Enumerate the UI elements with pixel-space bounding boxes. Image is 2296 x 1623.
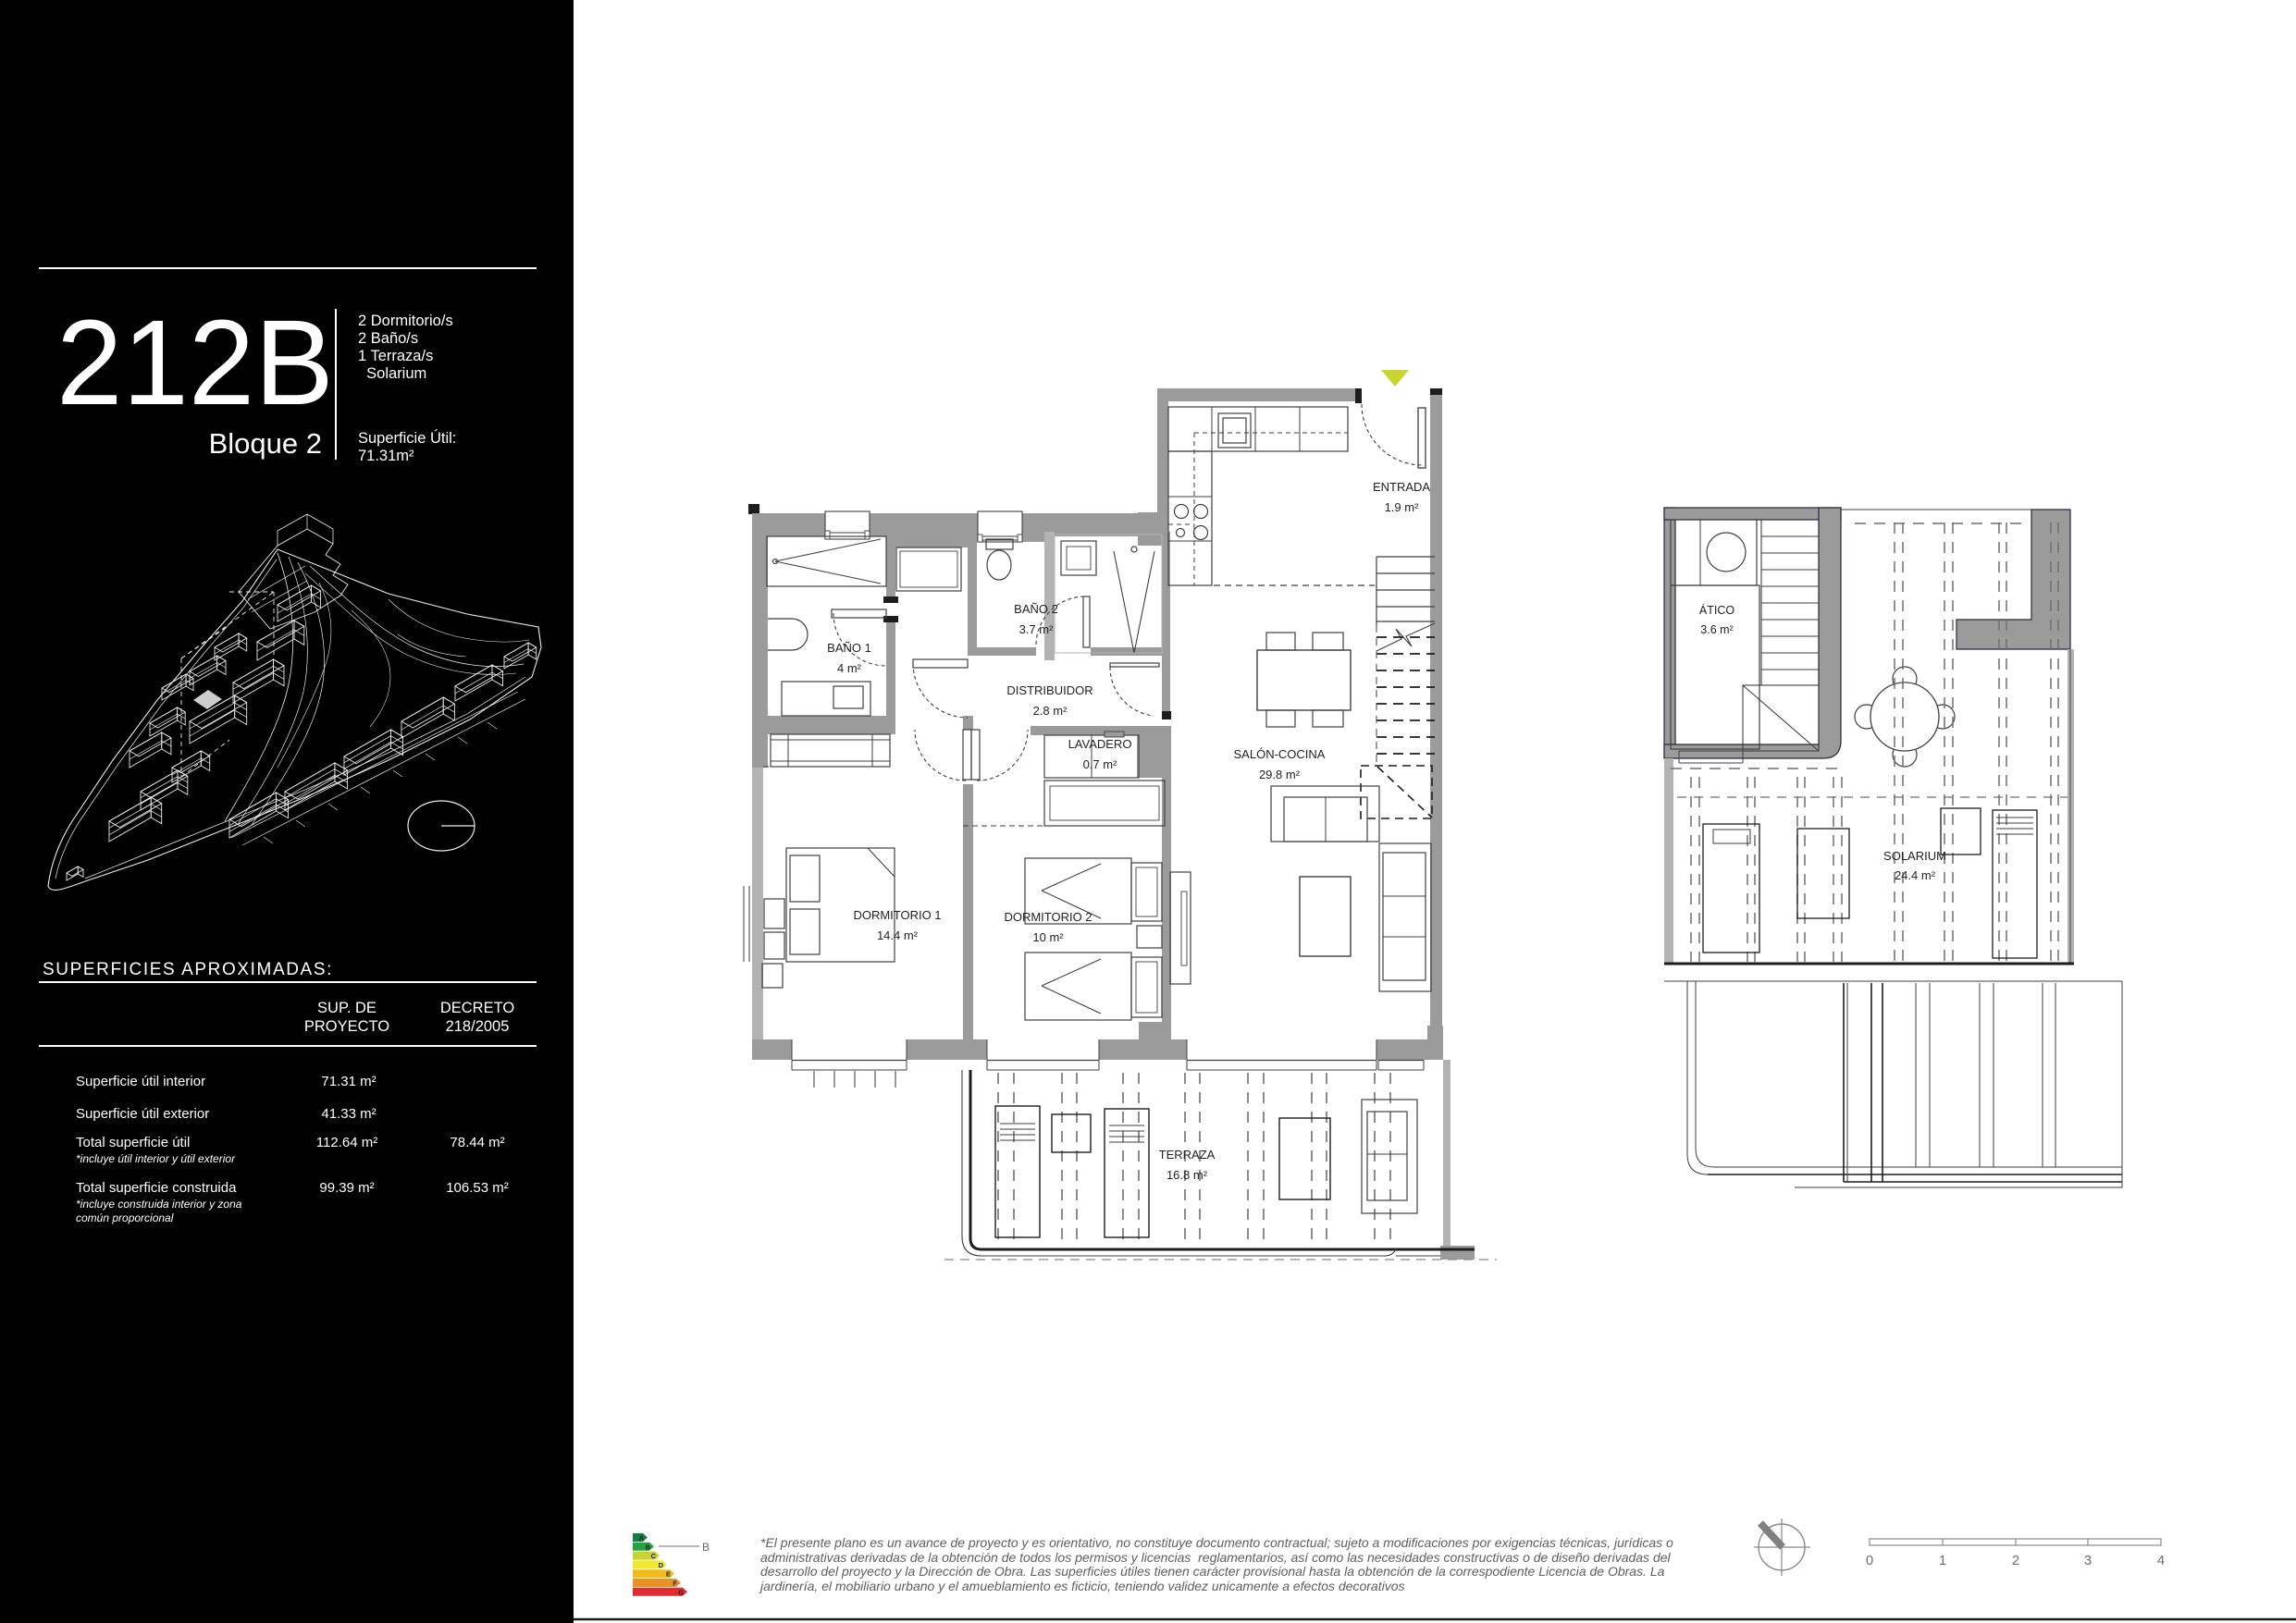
svg-text:DORMITORIO 1: DORMITORIO 1 <box>853 908 941 922</box>
svg-text:3.7 m²: 3.7 m² <box>1019 622 1055 636</box>
svg-text:LAVADERO: LAVADERO <box>1068 737 1132 751</box>
svg-text:ENTRADA: ENTRADA <box>1373 480 1430 494</box>
svg-text:BAÑO 1: BAÑO 1 <box>827 641 871 655</box>
svg-text:B: B <box>646 1543 651 1551</box>
svg-text:4 m²: 4 m² <box>837 661 862 675</box>
svg-text:SOLARIUM: SOLARIUM <box>1883 849 1946 863</box>
svg-text:3: 3 <box>2084 1553 2092 1568</box>
svg-text:G: G <box>678 1588 684 1596</box>
svg-text:F: F <box>673 1580 677 1588</box>
svg-text:2: 2 <box>2012 1553 2019 1568</box>
svg-text:BAÑO 2: BAÑO 2 <box>1014 602 1058 616</box>
svg-text:C: C <box>651 1552 657 1560</box>
svg-text:16.8 m²: 16.8 m² <box>1167 1168 1208 1182</box>
svg-text:3.6 m²: 3.6 m² <box>1700 623 1733 636</box>
svg-text:D: D <box>659 1561 664 1569</box>
svg-text:TERRAZA: TERRAZA <box>1159 1148 1216 1162</box>
svg-text:29.8 m²: 29.8 m² <box>1259 768 1301 781</box>
svg-text:DORMITORIO 2: DORMITORIO 2 <box>1004 910 1092 924</box>
svg-text:E: E <box>666 1570 671 1579</box>
svg-text:1.9 m²: 1.9 m² <box>1385 500 1420 514</box>
svg-text:ÁTICO: ÁTICO <box>1699 603 1734 617</box>
svg-text:0.7 m²: 0.7 m² <box>1083 757 1118 771</box>
svg-text:DISTRIBUIDOR: DISTRIBUIDOR <box>1006 683 1092 697</box>
svg-text:10 m²: 10 m² <box>1032 930 1064 944</box>
svg-text:A: A <box>639 1534 645 1543</box>
svg-text:14.4 m²: 14.4 m² <box>877 928 919 942</box>
svg-text:2.8 m²: 2.8 m² <box>1033 704 1068 718</box>
svg-text:24.4 m²: 24.4 m² <box>1895 868 1936 882</box>
svg-text:SALÓN-COCINA: SALÓN-COCINA <box>1234 747 1326 761</box>
svg-text:4: 4 <box>2157 1553 2165 1568</box>
svg-text:1: 1 <box>1939 1553 1946 1568</box>
svg-text:0: 0 <box>1866 1553 1873 1568</box>
svg-text:B: B <box>702 1541 710 1554</box>
